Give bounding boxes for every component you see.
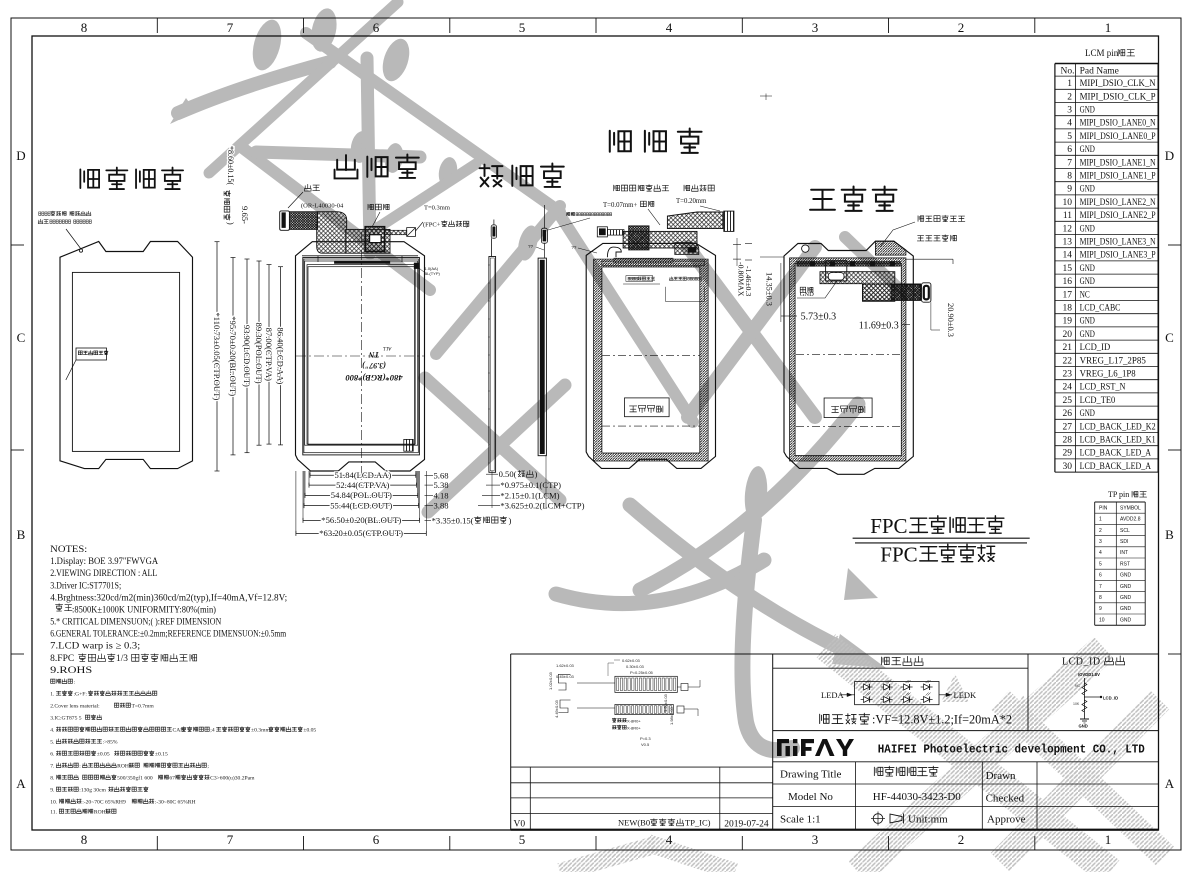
svg-text:AVDD2.8: AVDD2.8 <box>1120 517 1141 523</box>
svg-text:1: 1 <box>1067 79 1072 89</box>
svg-text:±0.05: ±0.05 <box>97 752 110 758</box>
svg-text:25: 25 <box>1063 396 1073 406</box>
svg-text:LEDK: LEDK <box>954 690 978 700</box>
svg-text:3.IC:GT875 5: 3.IC:GT875 5 <box>50 716 82 722</box>
svg-text:): ) <box>226 222 235 225</box>
svg-text:1: 1 <box>1105 832 1112 847</box>
svg-text:13: 13 <box>1063 238 1073 248</box>
svg-text:4.: 4. <box>50 728 55 734</box>
svg-text:51.84(LCD.AA): 51.84(LCD.AA) <box>334 470 391 480</box>
svg-text:-1.46±0.3: -1.46±0.3 <box>744 266 753 296</box>
svg-text:;4: ;4 <box>210 728 215 734</box>
svg-text:9: 9 <box>1067 185 1072 195</box>
svg-text:0.62±0.03: 0.62±0.03 <box>622 658 641 663</box>
svg-text:HF-44030-3423-D0: HF-44030-3423-D0 <box>873 791 961 803</box>
svg-text:VREG_L17_2P85: VREG_L17_2P85 <box>1080 355 1147 365</box>
svg-text:2.Cover lens material:: 2.Cover lens material: <box>50 704 100 710</box>
svg-text:MIPI_DSIO_LANE0_P: MIPI_DSIO_LANE0_P <box>1080 131 1156 141</box>
svg-text:SDI: SDI <box>1120 539 1128 545</box>
svg-text:D: D <box>16 148 25 163</box>
svg-text:480*(RGB)*800: 480*(RGB)*800 <box>345 373 404 383</box>
svg-text:±0.3mm: ±0.3mm <box>251 728 270 734</box>
svg-text:(FPC+: (FPC+ <box>423 222 441 229</box>
svg-text:5: 5 <box>1099 561 1102 567</box>
svg-text:GND: GND <box>1080 316 1096 326</box>
svg-text:*56.50±0.20(BL.OUT): *56.50±0.20(BL.OUT) <box>321 515 401 525</box>
svg-text:1: 1 <box>1105 20 1112 35</box>
svg-text:5.: 5. <box>50 740 55 746</box>
svg-text:6: 6 <box>373 20 380 35</box>
svg-text:(3.97"): (3.97") <box>362 361 386 370</box>
svg-text::G+F:: :G+F: <box>73 692 87 698</box>
svg-text:8: 8 <box>1067 172 1072 182</box>
svg-text:6: 6 <box>1099 573 1102 579</box>
svg-text:MIPI_DSIO_CLK_P: MIPI_DSIO_CLK_P <box>1080 91 1156 101</box>
svg-text:17: 17 <box>1063 290 1073 300</box>
svg-text:MIPI_DSIO_LANE2_N: MIPI_DSIO_LANE2_N <box>1080 197 1156 207</box>
svg-text:4.Brghtness:320cd/m2(min)360cd: 4.Brghtness:320cd/m2(min)360cd/m2(typ),I… <box>50 593 287 604</box>
svg-text:*63.20±0.05(CTP.OUT): *63.20±0.05(CTP.OUT) <box>319 528 403 538</box>
svg-text:RST: RST <box>1120 561 1130 567</box>
svg-text:IOVDD1.8V: IOVDD1.8V <box>1078 672 1100 677</box>
svg-text:500/350gf1 600: 500/350gf1 600 <box>117 775 153 782</box>
svg-text:PIN: PIN <box>1099 505 1108 511</box>
svg-text:*3.625±0.2(LCM+CTP): *3.625±0.2(LCM+CTP) <box>500 501 584 511</box>
svg-text:55.44(LCD.OUT): 55.44(LCD.OUT) <box>330 500 392 510</box>
svg-text:93.90(LCD.OUT): 93.90(LCD.OUT) <box>242 325 252 387</box>
svg-text:ALL: ALL <box>382 345 392 350</box>
svg-text:LCD_ID: LCD_ID <box>1062 657 1101 668</box>
svg-text:TP pin: TP pin <box>1108 490 1129 499</box>
svg-text:): ) <box>535 469 538 479</box>
svg-text:87.00(CTP.VA): 87.00(CTP.VA) <box>264 328 274 381</box>
svg-text:3.Driver IC:ST7701S;: 3.Driver IC:ST7701S; <box>50 582 121 592</box>
svg-text:0.30±0.03: 0.30±0.03 <box>626 664 645 669</box>
svg-text:7.: 7. <box>50 764 55 770</box>
svg-text:MIPI_DSIO_CLK_N: MIPI_DSIO_CLK_N <box>1080 78 1156 88</box>
svg-text:22: 22 <box>1063 356 1073 366</box>
svg-text:GND: GND <box>1080 408 1096 418</box>
svg-text:LCD_BACK_LED_A: LCD_BACK_LED_A <box>1080 461 1152 471</box>
svg-text:54.84(POL.OUT): 54.84(POL.OUT) <box>331 490 392 500</box>
svg-text:C: C <box>1165 330 1174 345</box>
svg-text:8: 8 <box>81 20 88 35</box>
svg-text:P=0.25±0.05: P=0.25±0.05 <box>630 670 654 675</box>
svg-text:2: 2 <box>958 20 965 35</box>
svg-text:26: 26 <box>1063 409 1073 419</box>
svg-text:X-8R0+: X-8R0+ <box>627 719 641 724</box>
svg-text:No.: No. <box>1061 67 1075 77</box>
svg-text::VF=12.8V±1.2;If=20mA*2: :VF=12.8V±1.2;If=20mA*2 <box>872 712 1012 727</box>
svg-text:GND: GND <box>1080 263 1096 273</box>
svg-text:7: 7 <box>1099 584 1102 590</box>
svg-text::130g 30cm: :130g 30cm <box>79 788 106 794</box>
svg-text:6: 6 <box>373 832 380 847</box>
svg-text:1.62±0.03: 1.62±0.03 <box>556 663 575 668</box>
svg-text:Model No: Model No <box>788 791 833 803</box>
svg-text:LCM pin: LCM pin <box>1085 48 1119 58</box>
svg-text:16: 16 <box>1063 277 1073 287</box>
svg-text:11.69±0.3: 11.69±0.3 <box>859 320 899 331</box>
svg-text:30: 30 <box>1063 462 1073 472</box>
svg-text:3: 3 <box>812 832 819 847</box>
svg-text:7: 7 <box>227 20 234 35</box>
svg-text::-30~80C 65%RH: :-30~80C 65%RH <box>155 800 196 806</box>
svg-text:V0: V0 <box>514 820 526 830</box>
svg-text:GND: GND <box>1080 223 1096 233</box>
svg-text:GND: GND <box>1080 276 1096 286</box>
svg-text:GND: GND <box>1120 617 1132 623</box>
svg-text:10K: 10K <box>1073 702 1080 706</box>
svg-text:1.98±0.03: 1.98±0.03 <box>669 706 674 725</box>
svg-text:4.18: 4.18 <box>434 490 449 500</box>
svg-text:MIPI_DSIO_LANE1_N: MIPI_DSIO_LANE1_N <box>1080 157 1156 167</box>
svg-text:GND: GND <box>1120 606 1132 612</box>
svg-text:FPC: FPC <box>870 514 907 538</box>
svg-text:TN: TN <box>367 350 379 359</box>
svg-text:5: 5 <box>519 20 526 35</box>
svg-text:B: B <box>17 527 26 542</box>
svg-text:67: 67 <box>169 776 175 782</box>
svg-text:B: B <box>1165 527 1174 542</box>
svg-text:20.90±0.3: 20.90±0.3 <box>946 303 955 337</box>
svg-text:Unit:mm: Unit:mm <box>908 814 948 826</box>
svg-text:15: 15 <box>1063 264 1073 274</box>
svg-text:2: 2 <box>958 832 965 847</box>
svg-text:4: 4 <box>666 20 673 35</box>
svg-text:0.50(: 0.50( <box>499 469 517 479</box>
svg-text:C: C <box>17 330 26 345</box>
svg-text:MIPI_DSIO_LANE3_P: MIPI_DSIO_LANE3_P <box>1080 250 1156 260</box>
svg-text:LCD_ID: LCD_ID <box>1080 342 1111 352</box>
svg-text:Approve: Approve <box>987 814 1026 826</box>
svg-text:19: 19 <box>1063 317 1073 327</box>
svg-text:BL(TYP): BL(TYP) <box>425 271 441 276</box>
svg-text:23: 23 <box>1063 370 1073 380</box>
svg-text:HAIFEI Photoelectric developme: HAIFEI Photoelectric development CO., LT… <box>878 744 1145 757</box>
svg-text:8.FPC: 8.FPC <box>50 654 74 664</box>
svg-text:18: 18 <box>1063 304 1073 314</box>
svg-text:Scale 1:1: Scale 1:1 <box>780 814 821 826</box>
svg-text:89.30(POL.OUT): 89.30(POL.OUT) <box>254 323 264 384</box>
svg-text:7.LCD warp is ≥ 0.3;: 7.LCD warp is ≥ 0.3; <box>50 642 140 652</box>
svg-text:GND: GND <box>1080 144 1096 154</box>
svg-text:Pad Name: Pad Name <box>1080 67 1119 77</box>
svg-text:A: A <box>16 776 26 791</box>
svg-text:D: D <box>1165 148 1174 163</box>
svg-text:±0.15: ±0.15 <box>155 752 168 758</box>
svg-text:MIPI_DSIO_LANE2_P: MIPI_DSIO_LANE2_P <box>1080 210 1156 220</box>
svg-text:20: 20 <box>1063 330 1073 340</box>
svg-text:LCD_BACK_LED_K1: LCD_BACK_LED_K1 <box>1080 435 1156 445</box>
svg-text:8.: 8. <box>50 776 55 782</box>
svg-text:9.65-: 9.65- <box>240 206 250 224</box>
svg-text:±0.05: ±0.05 <box>303 728 316 734</box>
svg-text:11.: 11. <box>50 810 57 816</box>
svg-text:8: 8 <box>81 832 88 847</box>
svg-text:4: 4 <box>1099 550 1102 556</box>
svg-text:5: 5 <box>1067 132 1072 142</box>
svg-text:5.38: 5.38 <box>434 480 449 490</box>
svg-text:NOTES:: NOTES: <box>50 545 87 555</box>
svg-text:MIPI_DSIO_LANE3_N: MIPI_DSIO_LANE3_N <box>1080 237 1156 247</box>
svg-text:MIPI_DSIO_LANE1_P: MIPI_DSIO_LANE1_P <box>1080 171 1156 181</box>
svg-text:7: 7 <box>1067 158 1072 168</box>
svg-text:6.GENERAL TOLERANCE:±0.2mm;REF: 6.GENERAL TOLERANCE:±0.2mm;REFERENCE DIM… <box>50 630 287 640</box>
svg-text:C3>600(u)30.2Pam: C3>600(u)30.2Pam <box>210 775 255 782</box>
svg-text:2019-07-24: 2019-07-24 <box>724 820 769 830</box>
svg-text:LCD_CABC: LCD_CABC <box>1080 303 1121 313</box>
svg-text:GND: GND <box>1080 105 1096 115</box>
svg-text:MIPI_DSIO_LANE0_N: MIPI_DSIO_LANE0_N <box>1080 118 1156 128</box>
svg-text:T=0.3mm: T=0.3mm <box>424 205 450 212</box>
svg-text:Drawn: Drawn <box>986 770 1016 782</box>
svg-text:2: 2 <box>1099 528 1102 534</box>
svg-text:9.ROHS: 9.ROHS <box>50 666 92 676</box>
svg-text:2.VIEWING DIRECTION : ALL: 2.VIEWING DIRECTION : ALL <box>50 569 157 579</box>
svg-text:1.02±0.03: 1.02±0.03 <box>548 671 553 690</box>
svg-text:5.68: 5.68 <box>434 470 449 480</box>
svg-text:11: 11 <box>1063 211 1072 221</box>
svg-text:9: 9 <box>1099 606 1102 612</box>
svg-text:LCD_BACK_LED_A: LCD_BACK_LED_A <box>1080 448 1152 458</box>
svg-text:21: 21 <box>1063 343 1073 353</box>
svg-text::-20~70C 65%RH9: :-20~70C 65%RH9 <box>82 800 126 806</box>
svg-text:VREG_L6_1P8: VREG_L6_1P8 <box>1080 369 1137 379</box>
svg-text:*2.15±0.1(LCM): *2.15±0.1(LCM) <box>500 490 559 500</box>
svg-text:T=0.07mm+: T=0.07mm+ <box>603 202 637 209</box>
svg-text:SCL: SCL <box>1120 528 1130 534</box>
svg-text:14.35±0.3: 14.35±0.3 <box>765 272 774 306</box>
svg-text:SYMBOL: SYMBOL <box>1120 505 1141 511</box>
svg-text:P=0.3: P=0.3 <box>640 736 651 741</box>
svg-text:INT: INT <box>1120 550 1128 556</box>
svg-text:??: ?? <box>528 244 534 249</box>
svg-text:*110.73±0.05(CTP.OUT): *110.73±0.05(CTP.OUT) <box>212 312 222 400</box>
svg-text:GND: GND <box>1080 329 1096 339</box>
svg-text:4.49±0.03: 4.49±0.03 <box>554 699 559 718</box>
svg-text:6.: 6. <box>50 752 55 758</box>
svg-text:5.* CRITICAL DIMENSUON;( ):REF: 5.* CRITICAL DIMENSUON;( ):REF DIMENSION <box>50 617 221 628</box>
svg-text:4: 4 <box>666 832 673 847</box>
svg-text:NEW(B0: NEW(B0 <box>618 818 650 828</box>
svg-text:): ) <box>466 222 468 229</box>
svg-text::8500K±1000K UNIFORMITY:80%(m: :8500K±1000K UNIFORMITY:80%(min) <box>72 605 216 616</box>
svg-text:T=0.7mm: T=0.7mm <box>131 704 154 710</box>
svg-text:3.88: 3.88 <box>434 501 449 511</box>
svg-text:LCD_RST_N: LCD_RST_N <box>1080 382 1126 392</box>
svg-text:8: 8 <box>1099 595 1102 601</box>
svg-text:*8.60±0.15(: *8.60±0.15( <box>226 146 235 185</box>
svg-text:*95.70±0.20(BL.OUT): *95.70±0.20(BL.OUT) <box>228 316 238 396</box>
svg-text:1.22±0.03: 1.22±0.03 <box>663 693 668 712</box>
svg-text:3: 3 <box>1099 539 1102 545</box>
svg-text::>85%: :>85% <box>103 740 118 746</box>
svg-text:GND: GND <box>1079 724 1088 729</box>
svg-text:NC: NC <box>1080 289 1090 299</box>
svg-text:LCD_TE0: LCD_TE0 <box>1080 395 1116 405</box>
svg-text:1: 1 <box>1099 517 1102 523</box>
svg-text:4: 4 <box>1067 119 1072 129</box>
svg-text:T=0.20mm: T=0.20mm <box>676 198 707 205</box>
svg-text:10.: 10. <box>50 800 58 806</box>
svg-text:7: 7 <box>227 832 234 847</box>
svg-text:5.73±0.3: 5.73±0.3 <box>801 312 837 323</box>
svg-text:1.Display: BOE 3.97"FWVGA: 1.Display: BOE 3.97"FWVGA <box>50 557 158 567</box>
svg-text:GND: GND <box>1120 573 1132 579</box>
svg-text:*3.35±0.15(: *3.35±0.15( <box>432 515 474 525</box>
svg-text:29: 29 <box>1063 449 1073 459</box>
svg-text:3: 3 <box>812 20 819 35</box>
svg-text:1.: 1. <box>50 692 55 698</box>
svg-text:28: 28 <box>1063 436 1073 446</box>
svg-text:Checked: Checked <box>986 793 1025 805</box>
svg-text:V0.5: V0.5 <box>641 742 650 747</box>
svg-text:14: 14 <box>1063 251 1073 261</box>
svg-text:10: 10 <box>1063 198 1073 208</box>
svg-text:*0.975±0.1(CTP): *0.975±0.1(CTP) <box>500 480 561 490</box>
svg-text:): ) <box>509 515 512 525</box>
svg-text:9.: 9. <box>50 788 55 794</box>
svg-text:86.40(LCD.AA): 86.40(LCD.AA) <box>275 327 285 384</box>
svg-text:0.45±0.03: 0.45±0.03 <box>556 674 575 679</box>
svg-text:TP_IC): TP_IC) <box>685 818 711 828</box>
svg-text:??: ?? <box>571 245 577 250</box>
svg-text:LCD_ID: LCD_ID <box>1103 696 1118 701</box>
svg-text:GND: GND <box>1120 595 1132 601</box>
svg-text:Drawing Title: Drawing Title <box>780 769 842 781</box>
svg-text:3: 3 <box>1067 106 1072 116</box>
svg-text:10: 10 <box>1099 617 1105 623</box>
svg-text:52.44(CTP.VA): 52.44(CTP.VA) <box>336 480 389 490</box>
svg-text:NC: NC <box>1075 684 1081 688</box>
svg-text:FPC: FPC <box>880 543 917 567</box>
svg-text:GND: GND <box>1120 584 1132 590</box>
svg-text:27: 27 <box>1063 422 1073 432</box>
svg-text:LCD_BACK_LED_K2: LCD_BACK_LED_K2 <box>1080 421 1156 431</box>
svg-text:5: 5 <box>519 832 526 847</box>
svg-text:GND: GND <box>1080 184 1096 194</box>
svg-text:2: 2 <box>1067 92 1072 102</box>
svg-text:1/3: 1/3 <box>116 654 128 664</box>
svg-text:24: 24 <box>1063 383 1073 393</box>
svg-text:(OR-L40030-04: (OR-L40030-04 <box>301 203 344 210</box>
svg-text:6: 6 <box>1067 145 1072 155</box>
svg-text:X-8R0+: X-8R0+ <box>627 726 641 731</box>
svg-text:12: 12 <box>1063 224 1073 234</box>
svg-text:A: A <box>1165 776 1175 791</box>
